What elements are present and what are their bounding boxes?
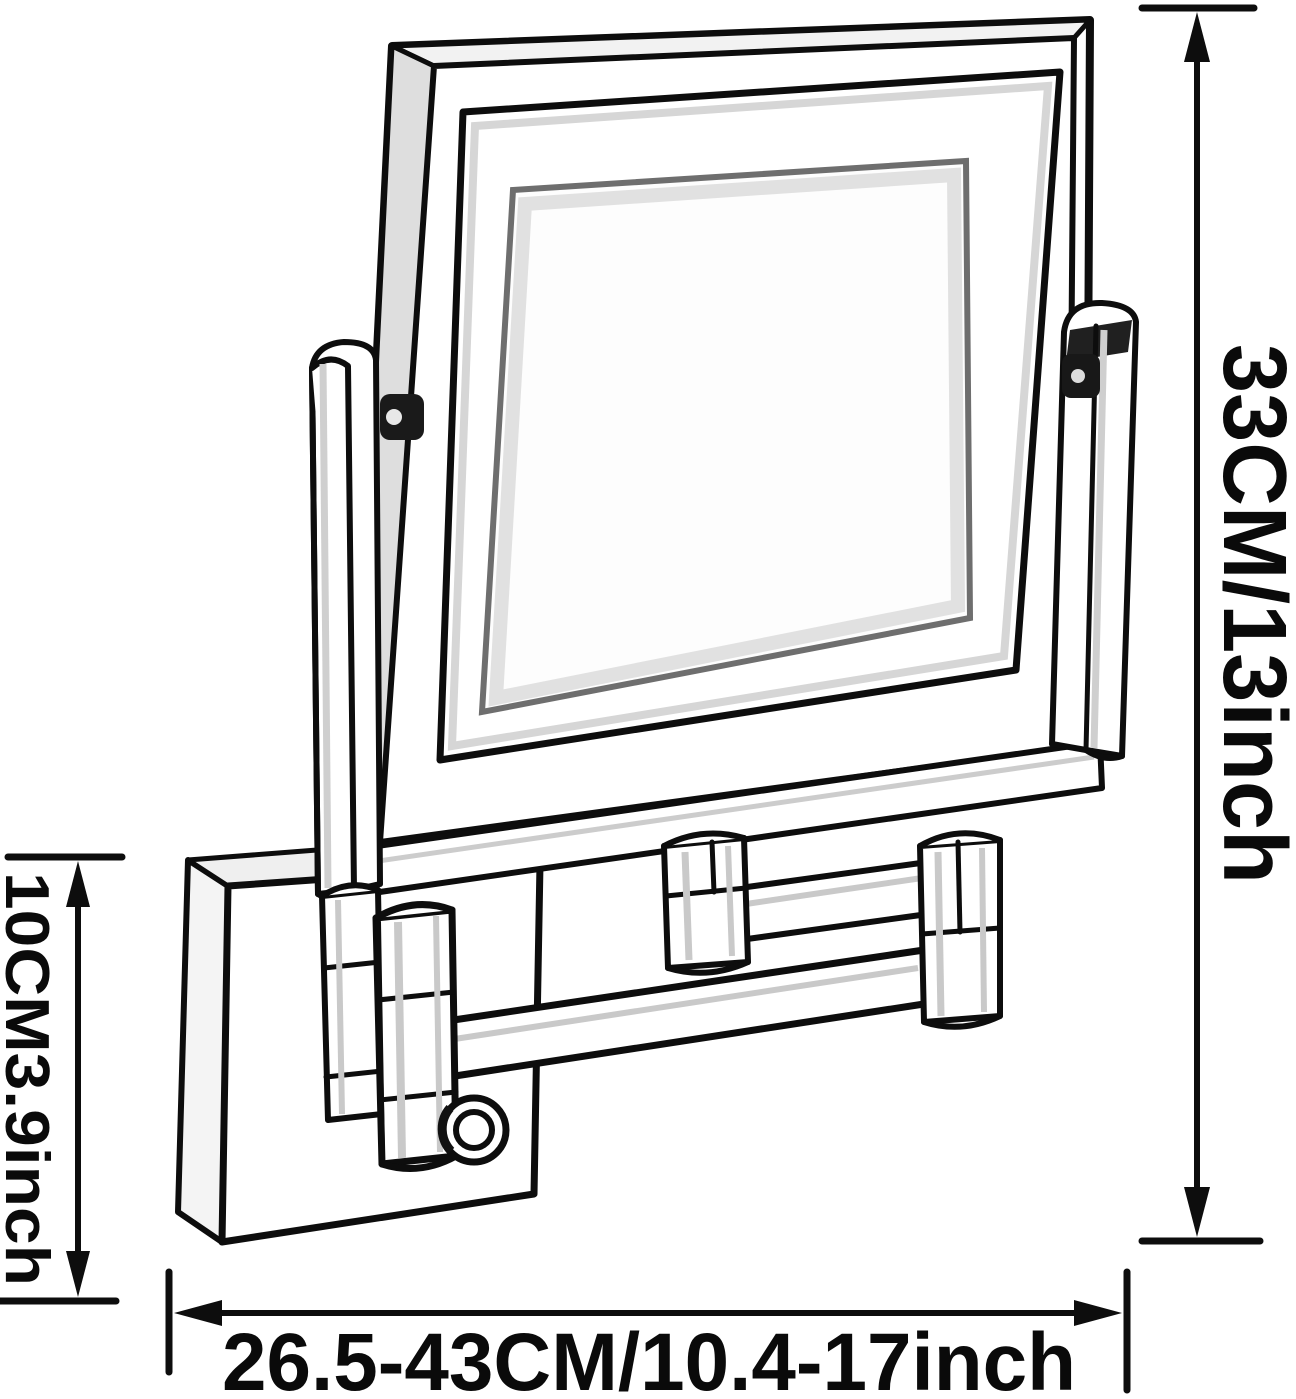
- middle-hinge-highlight: [685, 852, 689, 960]
- plate-height-dimension-label: 10CM3.9inch: [0, 872, 61, 1286]
- release-knob: [442, 1098, 506, 1162]
- folding-arm-upper: [740, 862, 928, 940]
- arrowhead-down-icon: [66, 1251, 90, 1297]
- height-dimension: 33CM/13inch: [1142, 8, 1296, 1241]
- width-dimension-label: 26.5-43CM/10.4-17inch: [222, 1317, 1076, 1399]
- left-post-chrome-highlight: [323, 364, 328, 888]
- mirror-dimension-drawing: 33CM/13inch 10CM3.9inch 26.5-43CM/10.4-1…: [0, 0, 1296, 1399]
- release-knob-center: [456, 1112, 492, 1148]
- right-pivot-pin-highlight: [1071, 369, 1085, 383]
- mirror-glass: [482, 161, 970, 712]
- width-dimension: 26.5-43CM/10.4-17inch: [169, 1272, 1127, 1399]
- right-pivot-post: [1052, 303, 1136, 758]
- arrowhead-up-icon: [66, 861, 90, 907]
- height-dimension-label: 33CM/13inch: [1204, 344, 1296, 884]
- plate-height-dimension: 10CM3.9inch: [0, 857, 122, 1301]
- mirror: [352, 20, 1090, 862]
- end-hinge: [920, 833, 1000, 1027]
- left-pivot-pin-highlight: [386, 409, 402, 425]
- middle-hinge: [664, 834, 748, 973]
- end-hinge-highlight: [938, 852, 941, 1016]
- arrowhead-up-icon: [1184, 12, 1210, 62]
- arrowhead-left-icon: [174, 1300, 222, 1326]
- arrowhead-down-icon: [1184, 1187, 1210, 1237]
- arrowhead-right-icon: [1074, 1300, 1122, 1326]
- product-dimension-diagram: 33CM/13inch 10CM3.9inch 26.5-43CM/10.4-1…: [0, 0, 1296, 1399]
- wall-hinge-highlight: [398, 922, 402, 1158]
